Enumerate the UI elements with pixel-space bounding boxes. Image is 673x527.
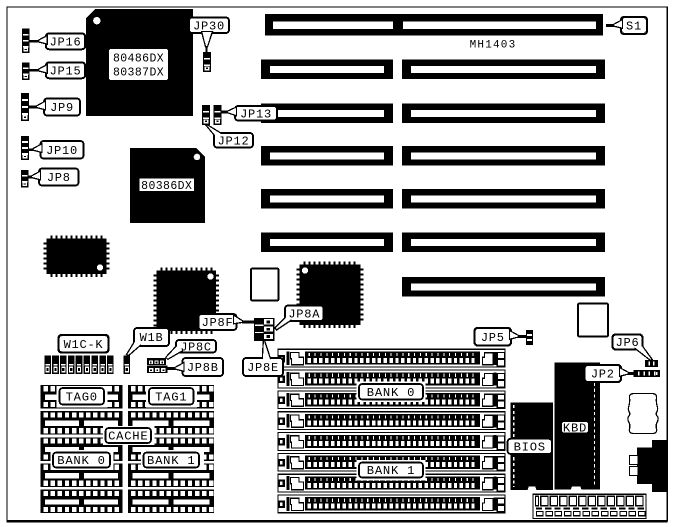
svg-text:JP13: JP13 [240,107,272,121]
svg-text:JP10: JP10 [46,144,78,158]
svg-text:JP16: JP16 [50,36,82,50]
svg-text:80387DX: 80387DX [113,67,164,80]
svg-text:W1C-K: W1C-K [64,338,104,352]
svg-text:TAG0: TAG0 [66,390,98,404]
svg-text:BANK 0: BANK 0 [367,386,415,400]
svg-text:CACHE: CACHE [108,430,148,444]
svg-text:JP8B: JP8B [187,361,219,375]
svg-text:TAG1: TAG1 [155,390,187,404]
svg-text:BIOS: BIOS [514,441,546,455]
svg-text:S1: S1 [626,20,642,34]
svg-text:JP12: JP12 [218,134,250,148]
svg-text:JP2: JP2 [591,368,615,382]
svg-text:KBD: KBD [563,421,587,435]
svg-text:BANK 1: BANK 1 [147,454,195,468]
svg-text:80386DX: 80386DX [141,180,192,193]
svg-text:JP8F: JP8F [202,316,234,330]
svg-text:BANK 0: BANK 0 [57,454,105,468]
svg-text:JP8C: JP8C [180,340,211,354]
svg-text:JP8: JP8 [47,171,71,185]
svg-text:W1B: W1B [140,331,164,345]
svg-text:80486DX: 80486DX [113,53,164,66]
svg-text:JP9: JP9 [50,101,74,115]
svg-text:JP5: JP5 [481,331,505,345]
svg-text:BANK 1: BANK 1 [367,464,415,478]
svg-text:JP15: JP15 [50,65,82,79]
svg-text:MH1403: MH1403 [470,40,517,52]
svg-text:JP8E: JP8E [247,361,279,375]
svg-text:JP8A: JP8A [288,307,320,321]
